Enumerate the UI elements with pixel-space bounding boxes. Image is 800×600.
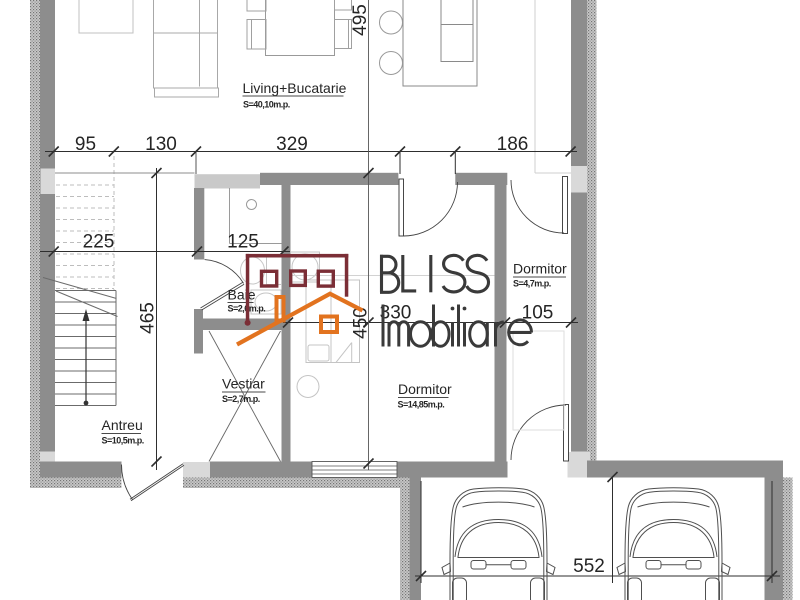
svg-text:S=4,7m.p.: S=4,7m.p.: [513, 279, 551, 289]
svg-text:495: 495: [350, 4, 371, 36]
svg-text:465: 465: [138, 302, 159, 334]
svg-text:95: 95: [75, 134, 96, 155]
svg-text:Vestiar: Vestiar: [222, 376, 265, 392]
svg-text:Living+Bucatarie: Living+Bucatarie: [243, 80, 347, 96]
svg-text:S=10,5m.p.: S=10,5m.p.: [102, 436, 144, 446]
svg-text:Dormitor: Dormitor: [398, 381, 452, 397]
svg-text:125: 125: [227, 232, 259, 253]
svg-text:Antreu: Antreu: [102, 417, 143, 433]
svg-text:Dormitor: Dormitor: [513, 261, 567, 277]
svg-text:S=14,85m.p.: S=14,85m.p.: [398, 400, 445, 410]
svg-text:Baie: Baie: [228, 287, 256, 303]
svg-text:186: 186: [497, 134, 529, 155]
svg-text:329: 329: [276, 134, 308, 155]
svg-text:130: 130: [145, 134, 177, 155]
svg-text:S=40,10m.p.: S=40,10m.p.: [243, 100, 290, 110]
svg-text:552: 552: [573, 556, 605, 577]
svg-text:S=2,7m.p.: S=2,7m.p.: [222, 394, 260, 404]
svg-text:225: 225: [83, 232, 115, 253]
